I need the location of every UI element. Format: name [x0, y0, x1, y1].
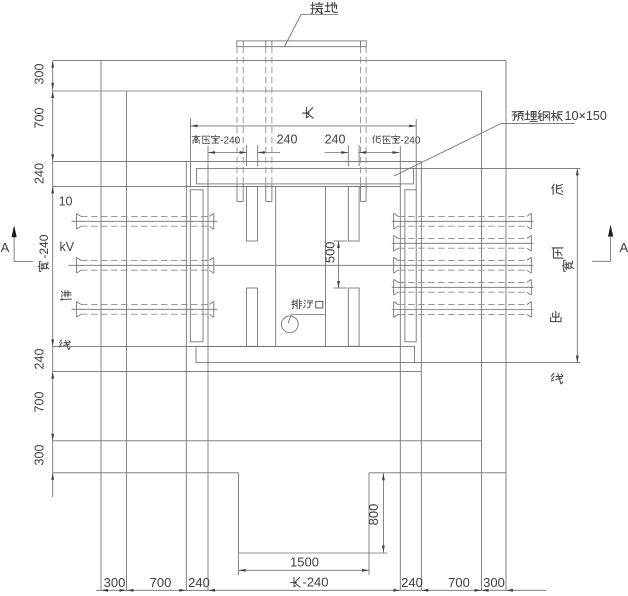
svg-text:240: 240 — [32, 163, 46, 184]
svg-text:700: 700 — [32, 392, 46, 413]
svg-text:1500: 1500 — [290, 555, 319, 570]
svg-text:A: A — [619, 240, 628, 255]
svg-text:-240: -240 — [303, 574, 329, 589]
svg-text:240: 240 — [188, 575, 210, 590]
svg-text:A: A — [1, 240, 10, 255]
svg-text:-240: -240 — [220, 135, 240, 146]
svg-text:-240: -240 — [400, 135, 420, 146]
svg-text:700: 700 — [150, 575, 172, 590]
svg-text:700: 700 — [448, 575, 470, 590]
svg-text:500: 500 — [322, 241, 337, 263]
svg-text:240: 240 — [325, 132, 346, 146]
svg-text:700: 700 — [32, 108, 46, 129]
svg-text:300: 300 — [483, 575, 505, 590]
svg-text:300: 300 — [32, 445, 46, 466]
svg-text:10×150: 10×150 — [565, 109, 607, 123]
svg-text:800: 800 — [366, 504, 381, 526]
svg-text:10: 10 — [59, 194, 73, 208]
svg-text:240: 240 — [277, 132, 298, 146]
svg-text:300: 300 — [104, 575, 126, 590]
svg-text:-240: -240 — [37, 234, 51, 258]
svg-text:kV: kV — [60, 240, 75, 254]
svg-text:300: 300 — [32, 64, 46, 85]
svg-text:240: 240 — [32, 349, 46, 370]
svg-text:240: 240 — [401, 575, 423, 590]
